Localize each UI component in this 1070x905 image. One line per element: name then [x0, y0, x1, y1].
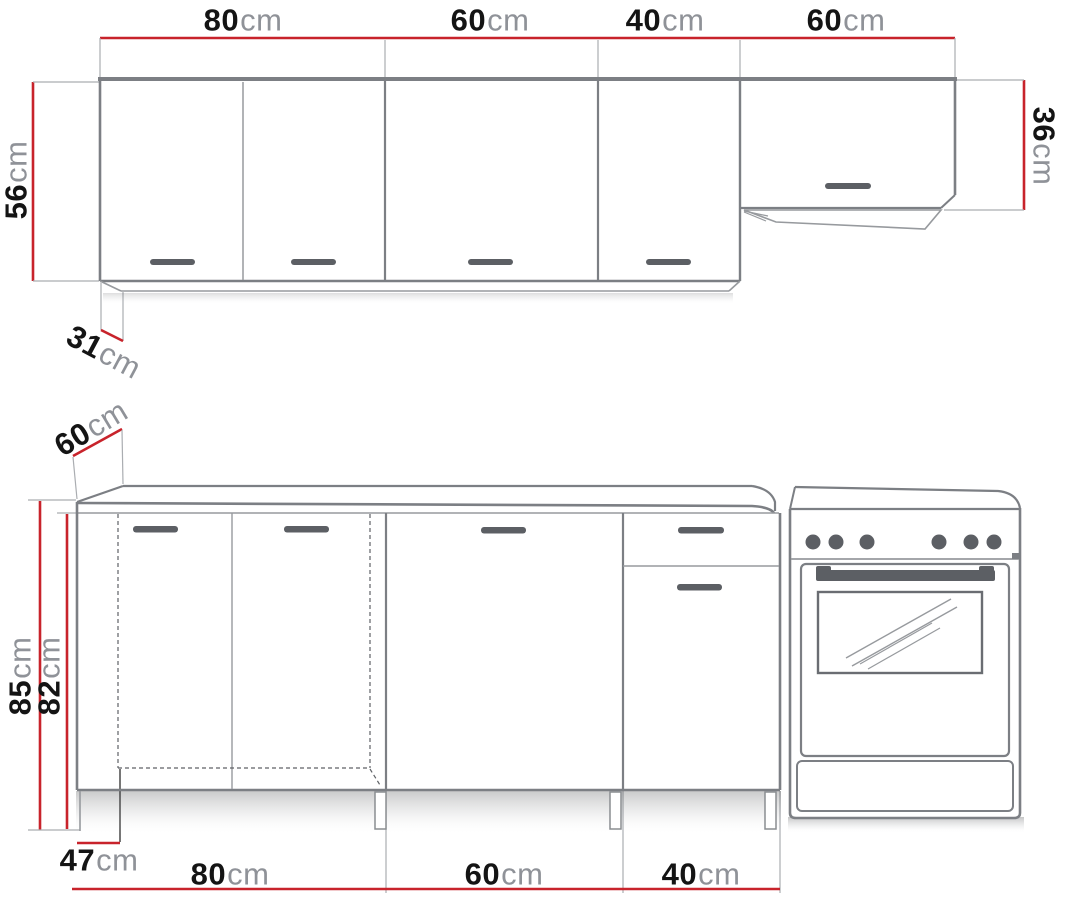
stove-knob — [964, 535, 979, 550]
dim-value: 40 — [662, 857, 697, 892]
wall-cabinet-shadow — [103, 293, 733, 304]
drawer-handle — [678, 527, 724, 534]
dim-top-60a: 60cm — [451, 5, 530, 36]
stove — [788, 487, 1024, 833]
dim-unit: cm — [843, 3, 885, 38]
dim-flap-height-36: 36cm — [1029, 107, 1060, 186]
kitchen-line-drawing — [0, 0, 1070, 905]
oven-window — [818, 592, 982, 673]
flap-door-handle — [825, 183, 871, 189]
cabinet-foot — [765, 792, 776, 829]
dim-bottom-40: 40cm — [662, 859, 741, 890]
dim-bottom-60: 60cm — [465, 859, 544, 890]
dim-front-depth-47: 47cm — [60, 845, 139, 876]
stove-knob — [932, 535, 947, 550]
dim-value: 36 — [1027, 107, 1062, 142]
stove-knob — [806, 535, 821, 550]
stove-drawer — [797, 761, 1013, 811]
dim-unit: cm — [32, 637, 67, 679]
flap-cabinet-underside — [744, 210, 941, 229]
wall-flap-cabinet — [740, 80, 955, 229]
kitchen-dimension-diagram: 80cm 60cm 40cm 60cm 56cm 36cm 31cm 60cm … — [0, 0, 1070, 905]
stove-knob — [829, 535, 844, 550]
dim-unit: cm — [240, 3, 282, 38]
dim-value: 60 — [465, 857, 500, 892]
dim-unit: cm — [487, 3, 529, 38]
countertop-surface — [77, 486, 776, 513]
cabinet-foot — [375, 792, 386, 829]
base-door-handle — [284, 526, 329, 533]
dim-value: 40 — [626, 3, 661, 38]
wall-door-handle — [646, 259, 691, 265]
dim-value: 56 — [0, 184, 34, 219]
stove-latch — [1012, 553, 1019, 559]
dim-unit: cm — [227, 857, 269, 892]
dim-wall-height-56: 56cm — [1, 141, 32, 220]
dim-value: 60 — [451, 3, 486, 38]
hidden-edge — [370, 769, 380, 785]
dim-unit: cm — [662, 3, 704, 38]
dim-value: 60 — [807, 3, 842, 38]
dim-bottom-80: 80cm — [191, 859, 270, 890]
dim-value: 80 — [191, 857, 226, 892]
base-cabinets — [76, 486, 781, 835]
dim-value: 80 — [204, 3, 239, 38]
dim-unit: cm — [501, 857, 543, 892]
base-door-handle — [677, 584, 722, 591]
dim-top-60b: 60cm — [807, 5, 886, 36]
base-door-handle — [133, 526, 178, 533]
dim-unit: cm — [0, 141, 34, 183]
wall-door-handle — [150, 259, 195, 265]
stove-knob — [987, 535, 1002, 550]
wall-door-handle — [291, 259, 336, 265]
cabinet-foot — [610, 792, 621, 829]
base-door-handle — [481, 527, 526, 534]
dim-top-40: 40cm — [626, 5, 705, 36]
stove-knob — [860, 535, 875, 550]
dim-base-height-82: 82cm — [34, 637, 65, 716]
stove-shadow — [788, 817, 1024, 833]
dim-unit: cm — [698, 857, 740, 892]
dim-unit: cm — [96, 843, 138, 878]
wall-door-handle — [468, 259, 513, 265]
dim-value: 47 — [60, 843, 95, 878]
wall-cabinets — [98, 79, 957, 304]
oven-handle — [816, 570, 995, 581]
dim-top-80: 80cm — [204, 5, 283, 36]
plinth-shadow — [76, 791, 781, 835]
dim-unit: cm — [1027, 143, 1062, 185]
dim-value: 82 — [32, 680, 67, 715]
